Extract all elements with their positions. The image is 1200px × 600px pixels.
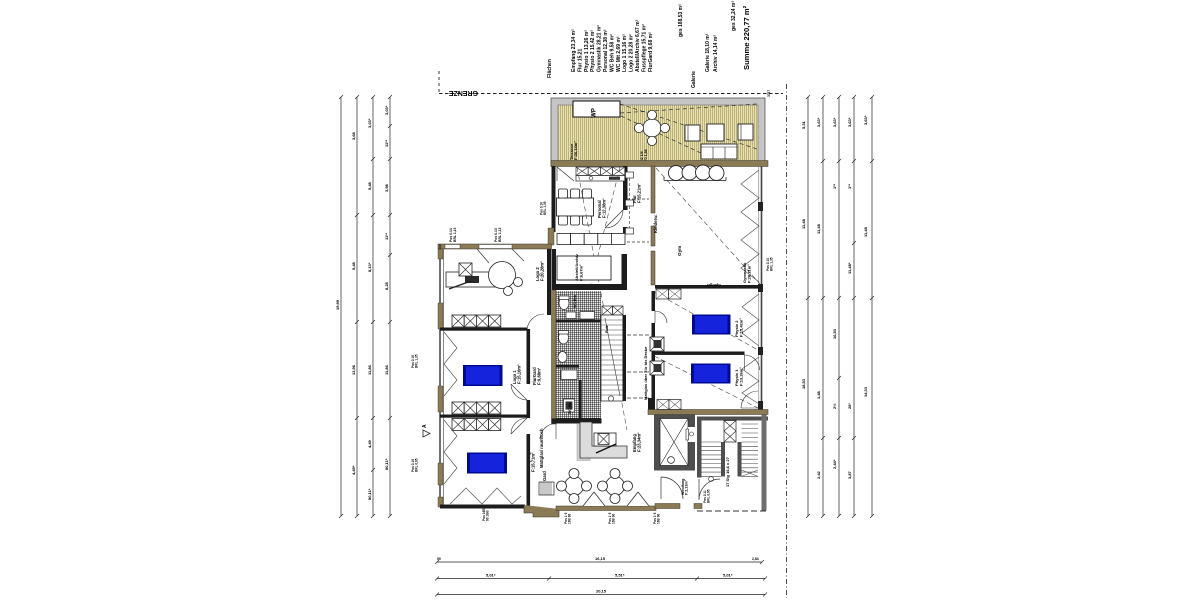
svg-text:Flur 15,21: Flur 15,21 <box>577 48 583 72</box>
svg-text:WC Mit 2,69 m²: WC Mit 2,69 m² <box>616 36 622 72</box>
svg-text:Physio 2 15,42 m²: Physio 2 15,42 m² <box>590 30 596 72</box>
svg-text:F:23,34m²: F:23,34m² <box>637 432 642 452</box>
svg-text:Logo 1 15,16 m²: Logo 1 15,16 m² <box>622 34 628 72</box>
svg-text:2,42: 2,42 <box>816 470 821 479</box>
svg-text:F:15,42m²: F:15,42m² <box>739 318 744 337</box>
svg-text:Flächen: Flächen <box>547 59 553 78</box>
svg-text:Galerie: Galerie <box>691 71 697 88</box>
svg-text:BRL 1,13: BRL 1,13 <box>453 227 457 242</box>
svg-text:WC Beh 9,58 m²: WC Beh 9,58 m² <box>609 34 615 72</box>
svg-text:2½: 2½ <box>832 403 837 409</box>
svg-text:3,98: 3,98 <box>384 183 389 192</box>
svg-text:5,01⁶: 5,01⁶ <box>486 573 496 578</box>
svg-text:2,84: 2,84 <box>752 557 759 561</box>
svg-text:90 1Bd: 90 1Bd <box>486 510 490 521</box>
svg-text:18,53: 18,53 <box>801 378 806 389</box>
svg-text:3,87: 3,87 <box>847 470 852 479</box>
svg-text:A: A <box>422 424 428 428</box>
svg-text:Gym: Gym <box>677 246 682 256</box>
svg-text:80,11⁶: 80,11⁶ <box>384 458 389 470</box>
svg-text:BRL 0,95: BRL 0,95 <box>415 458 419 472</box>
svg-text:3,63⁶: 3,63⁶ <box>847 117 852 127</box>
svg-text:28¹: 28¹ <box>847 403 852 409</box>
svg-text:1¹⁶: 1¹⁶ <box>832 183 837 189</box>
svg-text:16B 90: 16B 90 <box>657 513 661 524</box>
svg-text:Archiv 14,14 m²: Archiv 14,14 m² <box>713 35 719 72</box>
svg-text:11¹⁶: 11¹⁶ <box>384 139 389 147</box>
svg-text:WC Beh: WC Beh <box>573 295 577 308</box>
svg-text:16,53: 16,53 <box>832 328 837 339</box>
svg-text:3,63⁶: 3,63⁶ <box>863 115 868 125</box>
svg-text:F:15,21m²: F:15,21m² <box>637 183 642 203</box>
svg-text:5,01⁶: 5,01⁶ <box>723 573 733 578</box>
svg-text:4,49: 4,49 <box>367 439 372 448</box>
svg-text:11,86: 11,86 <box>367 364 372 375</box>
svg-text:Galerie 18,10 m²: Galerie 18,10 m² <box>705 33 711 72</box>
svg-text:16B 90: 16B 90 <box>568 513 572 524</box>
svg-text:Gymnastik 28,21 m²: Gymnastik 28,21 m² <box>597 25 603 72</box>
svg-text:F:36,14m²: F:36,14m² <box>573 141 578 160</box>
svg-text:Spiegel: Spiegel <box>707 283 721 288</box>
svg-text:5,48: 5,48 <box>367 181 372 190</box>
svg-text:ges 188,53 m²: ges 188,53 m² <box>678 4 684 37</box>
svg-text:F:12,38m²: F:12,38m² <box>602 198 607 218</box>
svg-text:Kleiderw.: Kleiderw. <box>653 215 658 233</box>
svg-text:3,68: 3,68 <box>351 131 356 140</box>
svg-text:4,49⁶: 4,49⁶ <box>351 465 356 475</box>
svg-text:BRL 1,35: BRL 1,35 <box>770 257 774 271</box>
svg-text:BRL 0,95: BRL 0,95 <box>707 489 711 503</box>
svg-text:Gard: Gard <box>542 471 547 481</box>
svg-text:14,33: 14,33 <box>863 386 868 397</box>
svg-text:5,51⁶: 5,51⁶ <box>615 573 625 578</box>
svg-text:GRENZE: GRENZE <box>449 89 479 96</box>
svg-text:BRL 1,35: BRL 1,35 <box>543 201 547 215</box>
svg-text:F:13,26m²: F:13,26m² <box>739 367 744 386</box>
svg-text:WP: WP <box>592 108 598 118</box>
svg-text:Abstell/Archiv 6,67 m²: Abstell/Archiv 6,67 m² <box>635 19 641 72</box>
svg-text:BRL 1,13: BRL 1,13 <box>498 227 502 242</box>
svg-text:F:6,67m²: F:6,67m² <box>579 264 584 281</box>
svg-text:F:15,16m²: F:15,16m² <box>517 364 522 384</box>
svg-text:F:20,28m²: F:20,28m² <box>540 261 545 281</box>
svg-text:FlurGard 9,68 m²: FlurGard 9,68 m² <box>648 32 654 72</box>
svg-text:16B 90: 16B 90 <box>612 513 616 524</box>
svg-text:Empfang 23,34 m²: Empfang 23,34 m² <box>571 29 577 72</box>
svg-text:F:2,13m²: F:2,13m² <box>685 479 689 495</box>
svg-text:Personal 12,38 m²: Personal 12,38 m² <box>603 29 609 72</box>
svg-text:20,15: 20,15 <box>596 589 607 594</box>
svg-text:Putz: Putz <box>605 325 609 333</box>
svg-text:1¹⁶: 1¹⁶ <box>847 183 852 189</box>
svg-text:F:9,68m²: F:9,68m² <box>537 367 542 385</box>
svg-text:3,63⁶: 3,63⁶ <box>832 117 837 127</box>
svg-text:F:15,71m²: F:15,71m² <box>531 452 536 472</box>
svg-text:Fusspflege 15,71 m²: Fusspflege 15,71 m² <box>641 24 647 72</box>
svg-text:Mattglas/ raumhoch: Mattglas/ raumhoch <box>539 428 544 468</box>
svg-text:Summe 220,77 m²: Summe 220,77 m² <box>742 5 751 70</box>
svg-text:17 Stg 16,6 x 27: 17 Stg 16,6 x 27 <box>725 456 730 487</box>
svg-text:11,48: 11,48 <box>816 223 821 234</box>
svg-text:11,86: 11,86 <box>384 364 389 375</box>
svg-text:80,11⁶: 80,11⁶ <box>367 488 372 500</box>
svg-text:5,31: 5,31 <box>801 120 806 129</box>
svg-text:F:28,21m²: F:28,21m² <box>747 264 752 283</box>
svg-text:11¹⁶: 11¹⁶ <box>384 232 389 240</box>
svg-text:ges 32,24 m²: ges 32,24 m² <box>731 1 737 31</box>
svg-text:8,28: 8,28 <box>384 281 389 290</box>
svg-text:WC Mit: WC Mit <box>568 402 572 414</box>
svg-text:3,03⁶: 3,03⁶ <box>367 118 372 128</box>
svg-text:8,13⁶: 8,13⁶ <box>367 262 372 272</box>
svg-text:2,44⁶: 2,44⁶ <box>832 459 837 469</box>
svg-text:11,48: 11,48 <box>863 226 868 237</box>
svg-text:19,99: 19,99 <box>335 299 340 310</box>
svg-text:5,48: 5,48 <box>351 261 356 270</box>
svg-text:90: 90 <box>437 557 441 561</box>
svg-text:Mattglas über Tür bis Decke: Mattglas über Tür bis Decke <box>643 346 648 400</box>
svg-text:16,15: 16,15 <box>595 556 606 561</box>
svg-text:13,96: 13,96 <box>351 364 356 375</box>
svg-text:3757: 3757 <box>767 90 771 97</box>
svg-text:11,48: 11,48 <box>801 218 806 229</box>
svg-text:3,63⁶: 3,63⁶ <box>816 117 821 127</box>
svg-text:1,48: 1,48 <box>816 390 821 399</box>
svg-text:BRL 1,35: BRL 1,35 <box>415 354 419 368</box>
svg-text:3,03⁶: 3,03⁶ <box>384 105 389 115</box>
svg-text:Logo 2 20,28 m²: Logo 2 20,28 m² <box>629 34 635 72</box>
svg-text:11,48⁶: 11,48⁶ <box>847 262 852 274</box>
svg-text:Physio 1 13,26 m²: Physio 1 13,26 m² <box>584 30 590 72</box>
